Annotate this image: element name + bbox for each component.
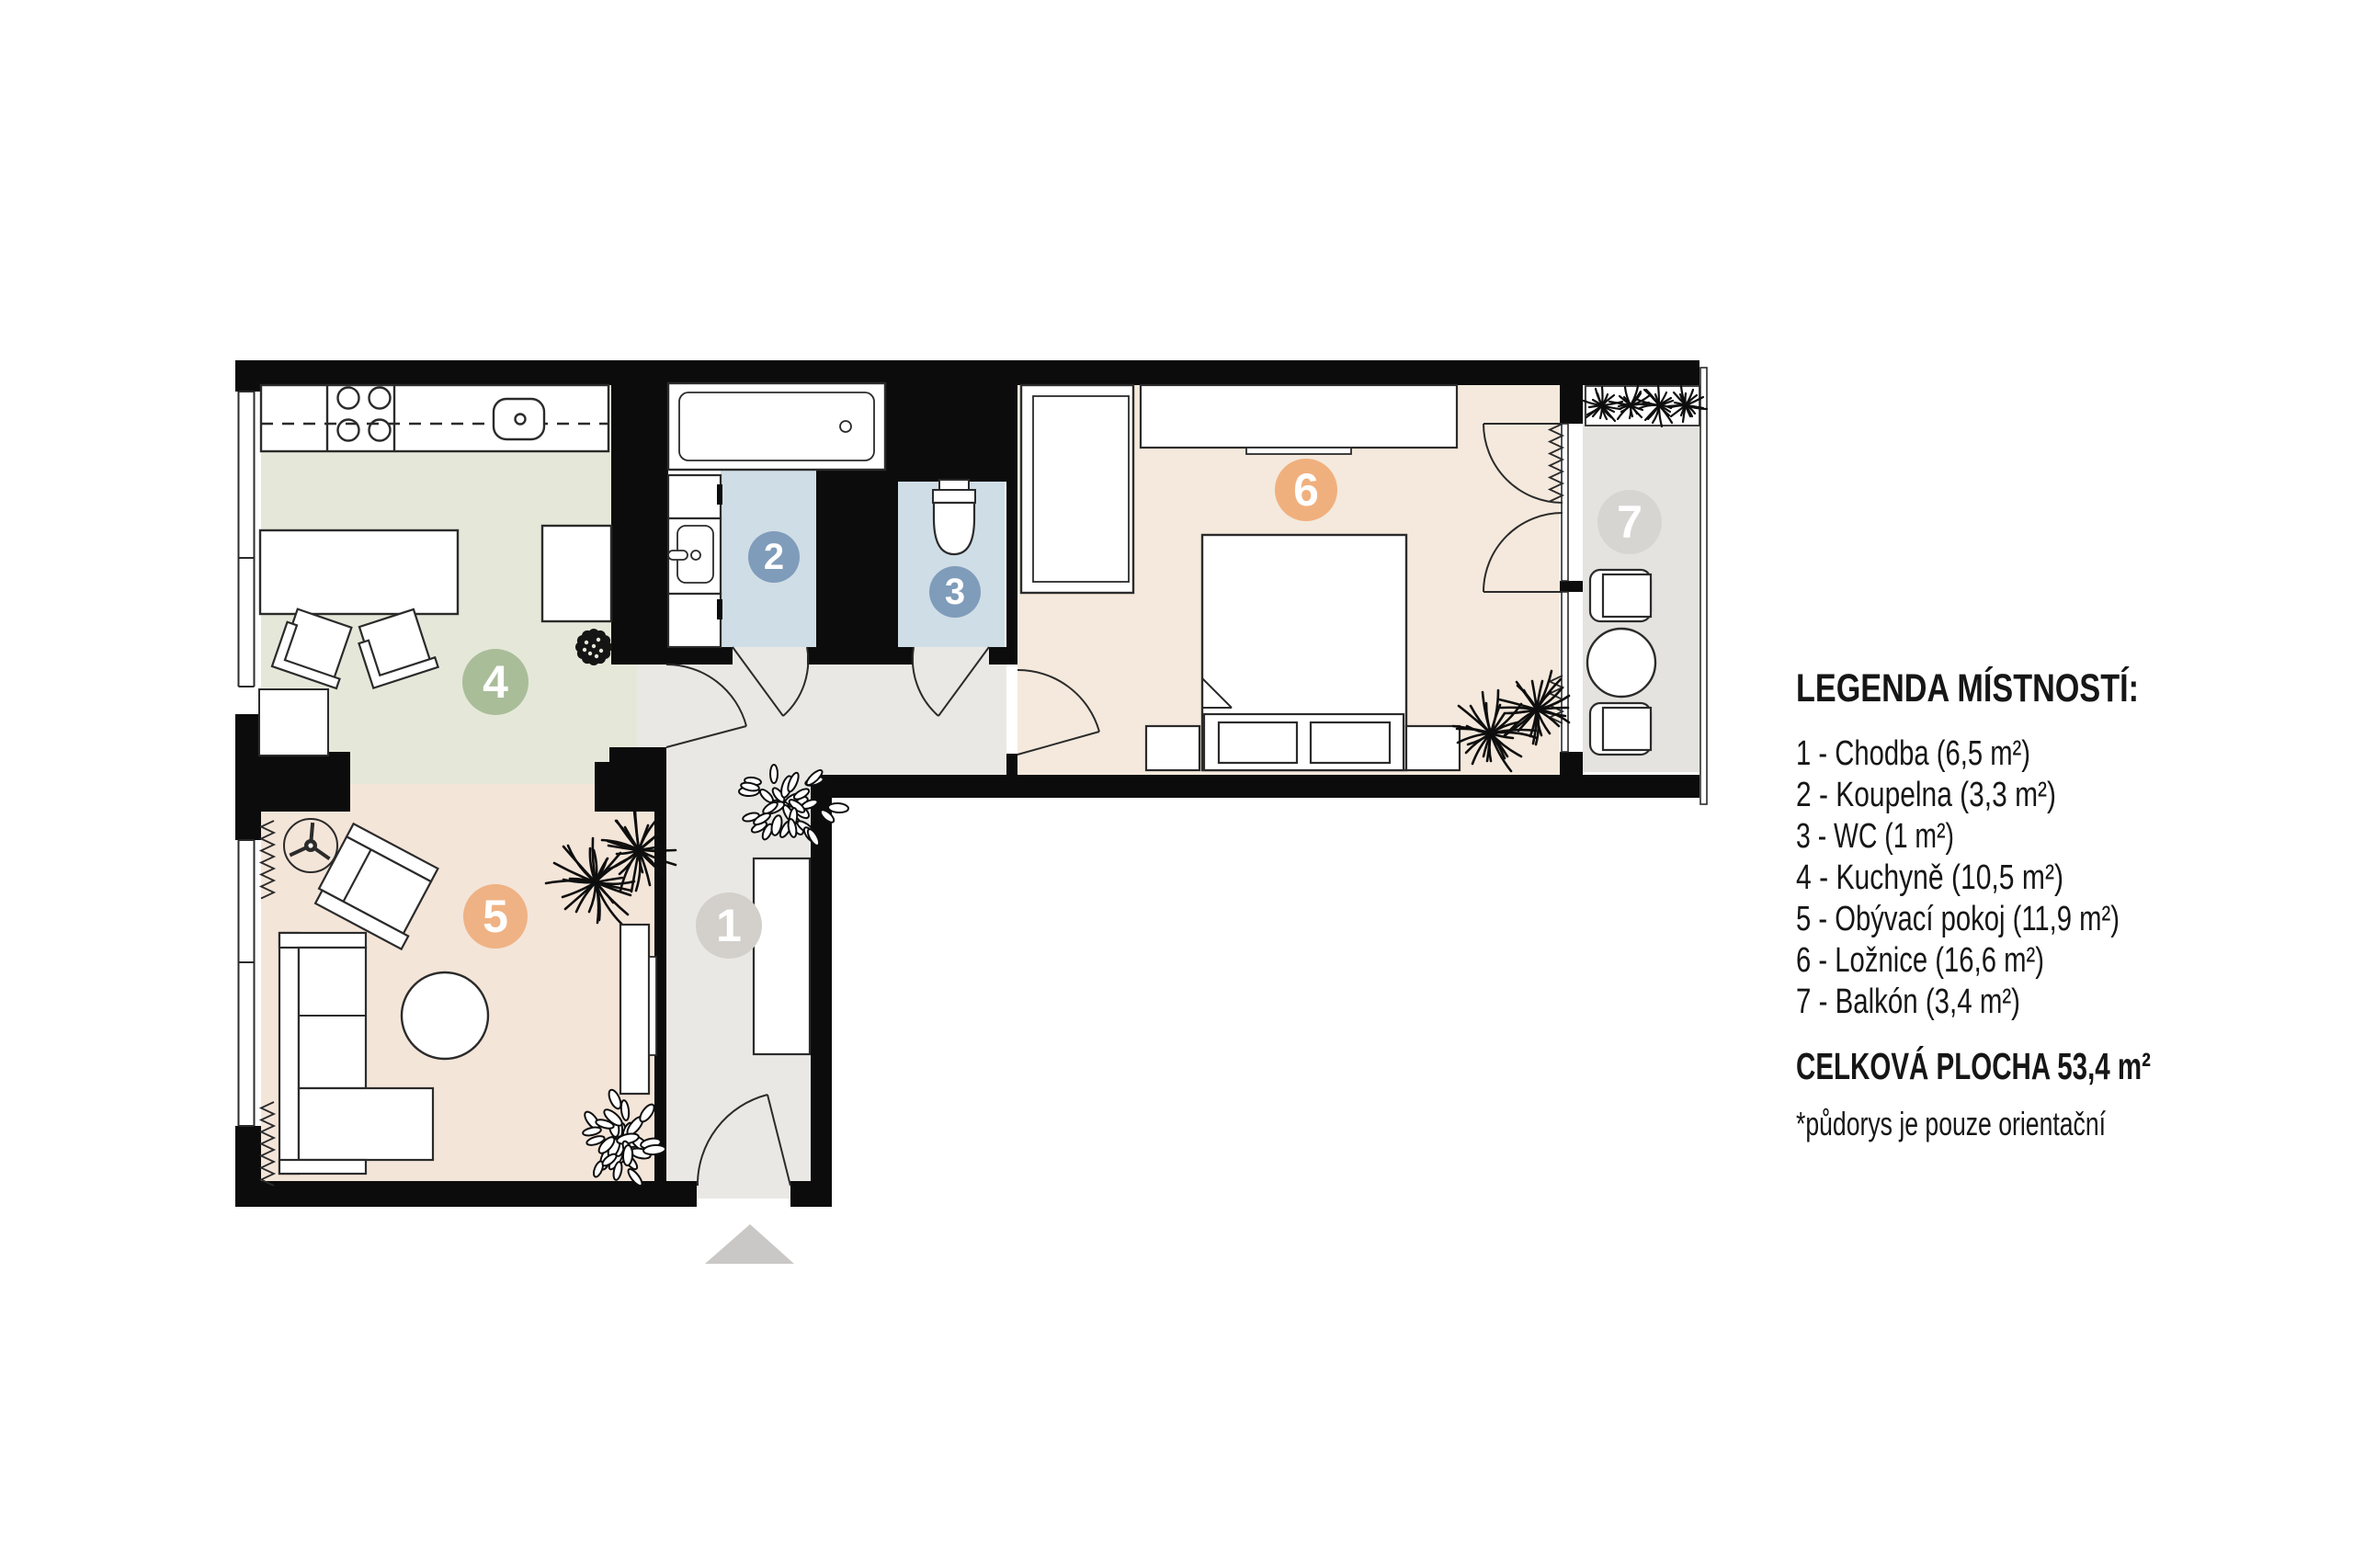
svg-text:7: 7 [1617, 496, 1643, 548]
svg-text:6 - Ložnice (16,6 m²): 6 - Ložnice (16,6 m²) [1796, 941, 2044, 980]
svg-text:1: 1 [716, 900, 742, 951]
svg-text:3 - WC (1 m²): 3 - WC (1 m²) [1796, 817, 1954, 856]
svg-text:3: 3 [945, 572, 965, 612]
svg-text:2: 2 [764, 537, 784, 577]
svg-text:1 - Chodba (6,5 m²): 1 - Chodba (6,5 m²) [1796, 734, 2030, 773]
svg-text:4 - Kuchyně (10,5 m²): 4 - Kuchyně (10,5 m²) [1796, 858, 2063, 897]
svg-text:CELKOVÁ PLOCHA 53,4 m²: CELKOVÁ PLOCHA 53,4 m² [1796, 1045, 2151, 1087]
svg-text:5: 5 [483, 891, 508, 942]
svg-text:4: 4 [483, 656, 508, 708]
svg-text:2 - Koupelna (3,3 m²): 2 - Koupelna (3,3 m²) [1796, 776, 2056, 814]
svg-text:6: 6 [1293, 464, 1319, 516]
svg-text:5 - Obývací pokoj (11,9 m²): 5 - Obývací pokoj (11,9 m²) [1796, 900, 2120, 938]
svg-text:7 - Balkón (3,4 m²): 7 - Balkón (3,4 m²) [1796, 983, 2020, 1021]
svg-text:*půdorys je pouze orientační: *půdorys je pouze orientační [1796, 1105, 2106, 1142]
svg-text:LEGENDA MÍSTNOSTÍ:: LEGENDA MÍSTNOSTÍ: [1796, 666, 2139, 710]
